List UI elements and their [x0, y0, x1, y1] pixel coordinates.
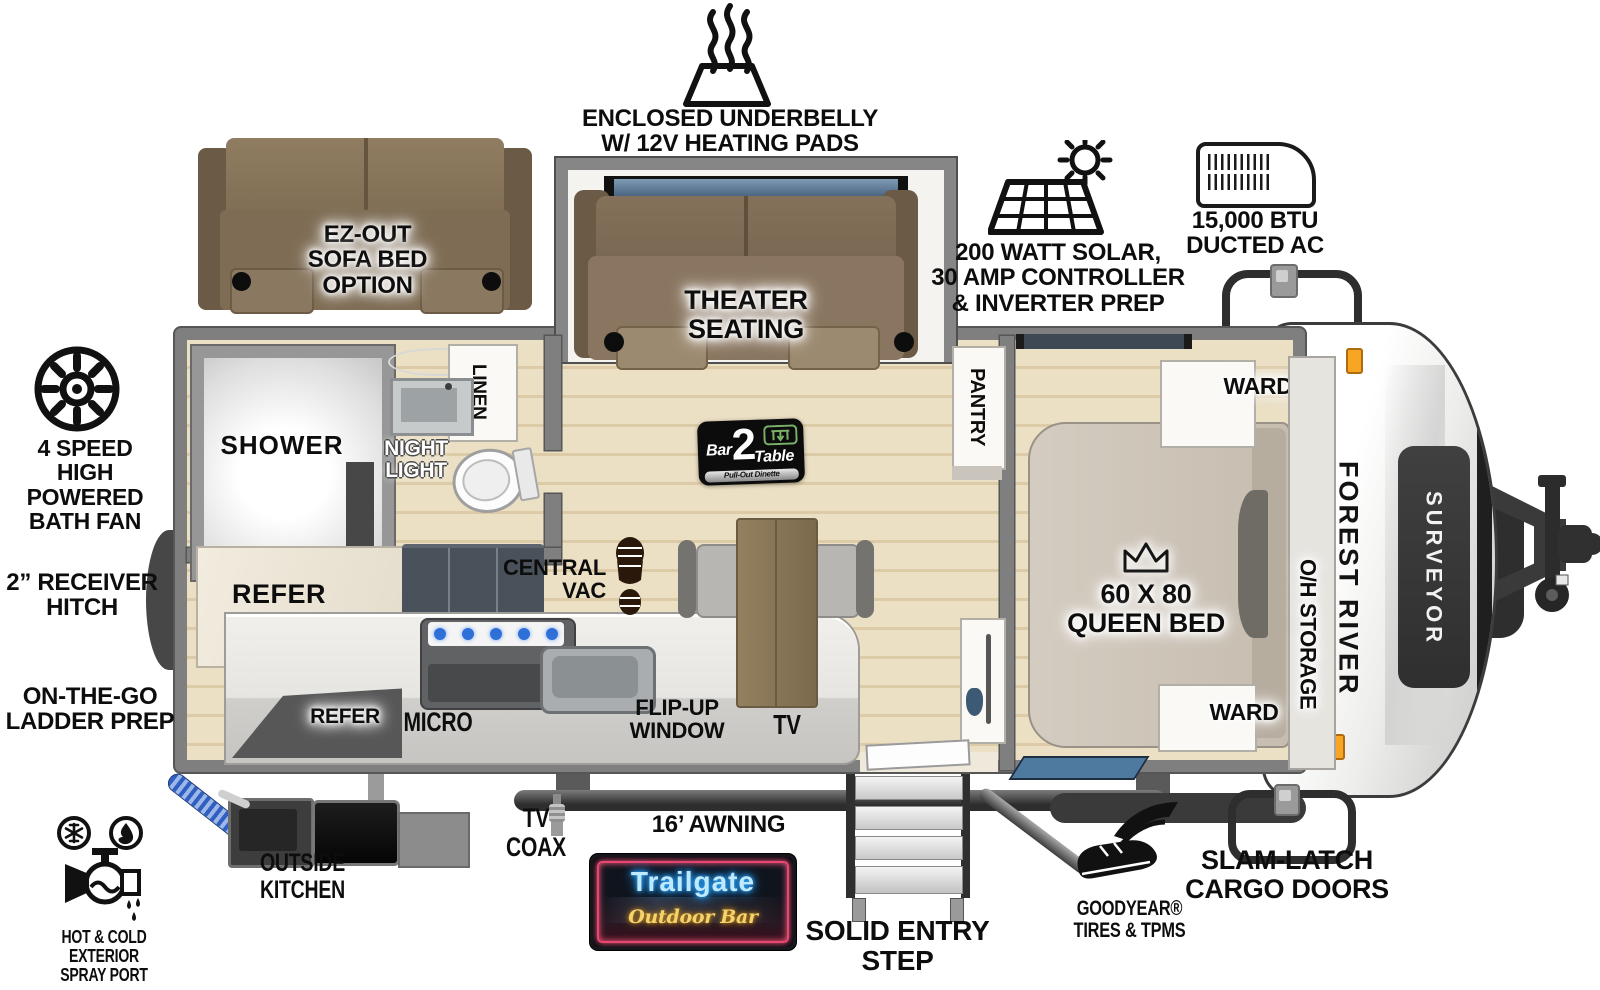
marker-light	[1346, 348, 1363, 374]
entry-door	[865, 739, 970, 770]
bath-fan-label: 4 SPEED HIGH POWERED BATH FAN	[0, 436, 170, 534]
cupholder	[894, 332, 914, 352]
theater-seating-label: THEATER SEATING	[666, 286, 826, 343]
entry-wardrobe	[960, 618, 1006, 744]
bath-fan-icon	[32, 344, 122, 434]
ac-label: 15,000 BTU DUCTED AC	[1180, 208, 1330, 259]
ward-bottom-label: WARD	[1198, 700, 1290, 724]
bath-sink	[390, 378, 474, 436]
crown-icon	[1118, 538, 1174, 578]
tv-label: TV	[764, 710, 809, 740]
trailgate-sign: Trailgate Outdoor Bar	[590, 854, 796, 950]
entry-steps-icon	[846, 770, 970, 922]
bath-wall-right-top	[545, 336, 561, 450]
bar2table-sub: Pull-Out Dinette	[705, 469, 799, 481]
goodyear-wingfoot-icon	[1070, 800, 1182, 892]
spray-port-label: HOT & COLD EXTERIOR SPRAY PORT	[26, 928, 182, 985]
awning-label: 16’ AWNING	[646, 812, 791, 837]
refer-label: REFER	[214, 580, 344, 609]
cupholder	[604, 332, 624, 352]
brand-model: SURVEYOR	[1422, 474, 1445, 664]
solar-label: 200 WATT SOLAR, 30 AMP CONTROLLER & INVE…	[930, 240, 1186, 316]
dinette-chair	[812, 544, 860, 618]
sofa-option-label: EZ-OUT SOFA BED OPTION	[300, 222, 435, 298]
floorplan-canvas: FOREST RIVER SURVEYOR THEATER SEATING EZ…	[0, 0, 1600, 990]
pantry-shadow	[952, 466, 1002, 480]
bar2table-badge: Bar 2 Table Pull-Out Dinette	[697, 418, 805, 486]
slam-latch-label: SLAM-LATCH CARGO DOORS	[1178, 846, 1396, 903]
dinette-chair-arm	[678, 540, 696, 618]
entry-mat	[1009, 756, 1150, 780]
cargo-door-latch	[1274, 784, 1300, 816]
footprint-icon	[612, 536, 648, 620]
bar2table-table: Table	[746, 448, 803, 467]
oh-storage-label: O/H STORAGE	[1296, 508, 1319, 760]
bedroom-window	[1016, 334, 1192, 349]
shower-label: SHOWER	[212, 432, 352, 460]
ladder-prep-label: ON-THE-GO LADDER PREP	[0, 684, 180, 735]
outside-refer-label: REFER	[300, 706, 390, 728]
receiver-hitch-label: 2” RECEIVER HITCH	[0, 570, 164, 621]
entry-step-label: SOLID ENTRY STEP	[795, 916, 1000, 975]
central-vac-label: CENTRAL VAC	[488, 556, 606, 603]
ac-unit-icon	[1196, 142, 1316, 208]
trailgate-subtitle: Outdoor Bar	[611, 907, 775, 927]
brand-make: FOREST RIVER	[1334, 404, 1363, 754]
hi-lo-table-icon	[763, 424, 798, 445]
queen-bed-label: 60 X 80 QUEEN BED	[1040, 580, 1252, 637]
goodyear-label: GOODYEAR® TIRES & TPMS	[1069, 898, 1190, 943]
trailgate-title: Trailgate	[601, 867, 785, 897]
solar-panel-icon	[988, 140, 1114, 238]
dinette-chair-arm	[856, 540, 874, 618]
outside-kitchen-box	[398, 812, 470, 868]
outside-kitchen-label: OUTSIDE KITCHEN	[223, 850, 383, 903]
spray-port-icon	[48, 812, 154, 930]
cap-edge	[1477, 334, 1492, 785]
heating-pads-icon	[672, 2, 782, 110]
tv-coax-label: TV COAX	[499, 804, 574, 861]
cargo-door-latch	[1270, 264, 1298, 298]
surveyor-panel: SURVEYOR	[1398, 446, 1470, 688]
dinette-table	[736, 518, 818, 708]
pantry-label: PANTRY	[966, 354, 987, 460]
night-light-label: NIGHT LIGHT	[366, 438, 466, 483]
underbelly-label: ENCLOSED UNDERBELLY W/ 12V HEATING PADS	[556, 106, 904, 157]
